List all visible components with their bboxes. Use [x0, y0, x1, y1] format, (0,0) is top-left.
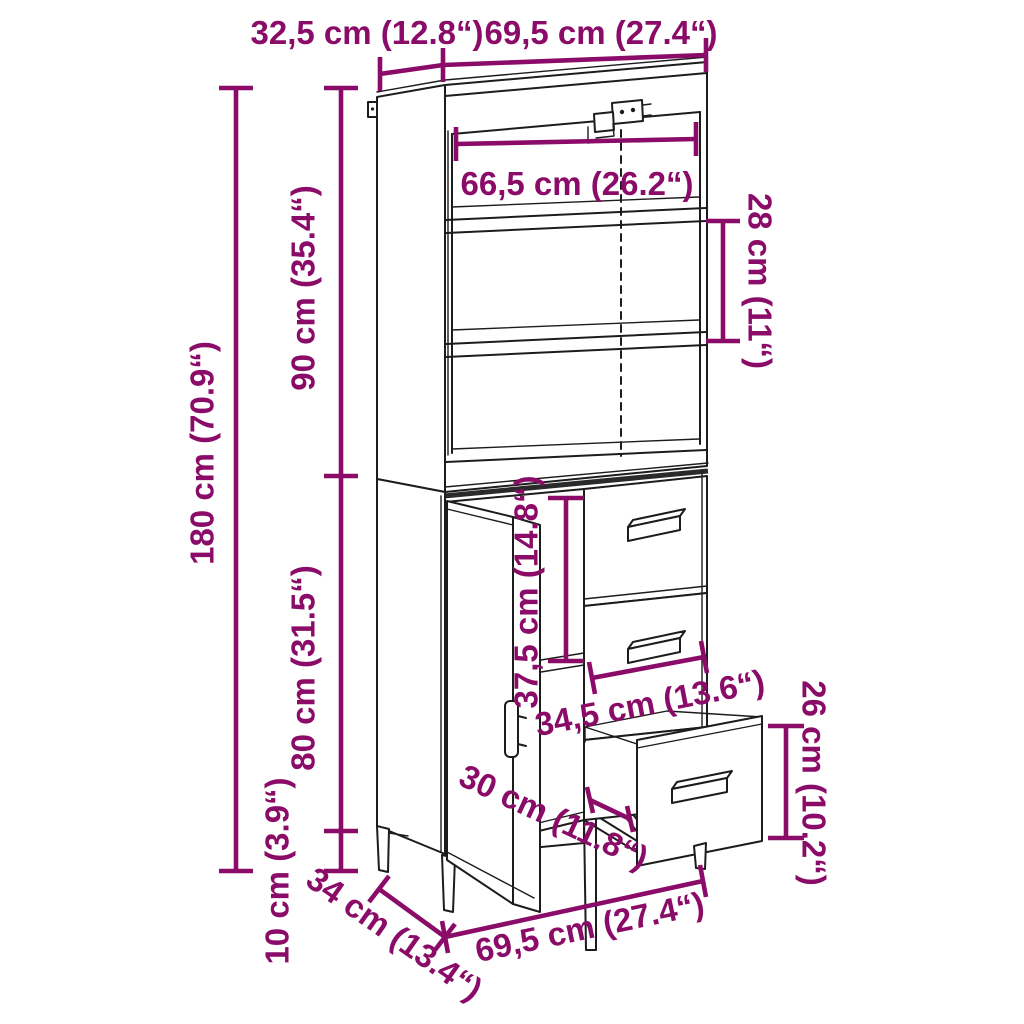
dim-inner-width-label: 66,5 cm (26.2“)	[461, 165, 694, 202]
dim-top-width-label: 69,5 cm (27.4“)	[485, 14, 718, 51]
cabinet-dimension-drawing: 32,5 cm (12.8“) 69,5 cm (27.4“) 66,5 cm …	[0, 0, 1024, 1024]
product-dimension-diagram: 32,5 cm (12.8“) 69,5 cm (27.4“) 66,5 cm …	[0, 0, 1024, 1024]
back-left-leg	[377, 826, 389, 872]
wall-bracket	[368, 102, 377, 117]
upper-cabinet-section	[368, 57, 707, 492]
dim-inner-drawer-height-label: 37,5 cm (14.8“)	[508, 476, 545, 709]
dim-top-depth-label: 32,5 cm (12.8“)	[251, 14, 484, 51]
dim-total-height-label: 180 cm (70.9“)	[184, 341, 221, 565]
dim-shelf-gap-label: 28 cm (11“)	[742, 193, 779, 369]
dim-open-drawer-height-label: 26 cm (10.2“)	[796, 680, 833, 885]
door-face	[447, 501, 513, 904]
upper-side-panel	[377, 85, 445, 492]
lower-side-panel	[377, 479, 445, 854]
dim-lower-height-label: 80 cm (31.5“)	[285, 565, 322, 770]
drawer-front-1	[584, 476, 707, 606]
dim-leg-height-label: 10 cm (3.9“)	[259, 777, 296, 964]
dim-upper-height-label: 90 cm (35.4“)	[285, 185, 322, 390]
upper-front-opening	[445, 62, 707, 492]
